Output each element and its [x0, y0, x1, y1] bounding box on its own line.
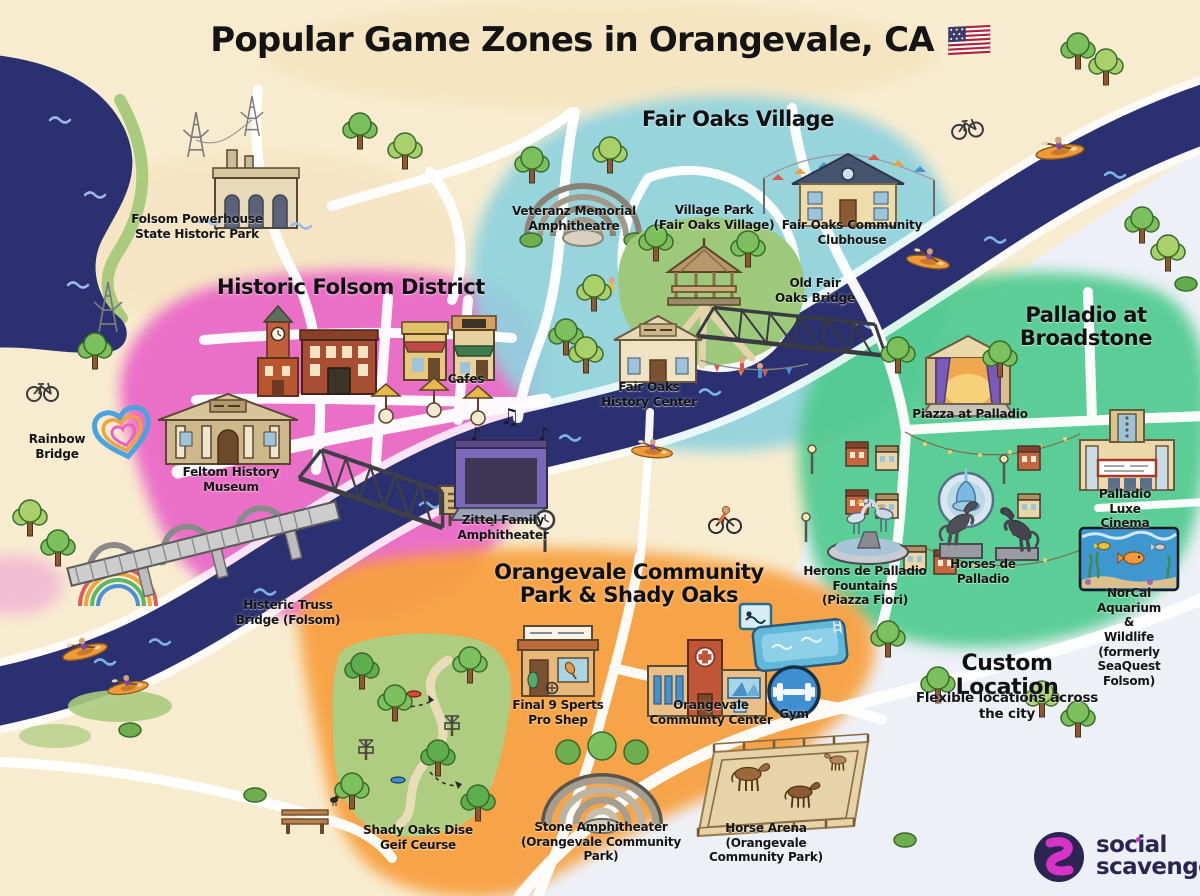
map-illustration: ♪ ♫ ♪ [0, 0, 1200, 896]
label-herons-fountains: Herons de Palladio Fountains (Piazza Fio… [803, 564, 926, 608]
zittel-stage-icon [451, 440, 551, 520]
label-stone-amphitheater: Stone Amphitheater (Orangevale Community… [521, 820, 681, 864]
label-disc-golf: Shady Oaks Dise Geif Ceurse [363, 823, 473, 852]
label-zittel-amphitheater: Zittel Family Amphitheater [458, 513, 549, 542]
aquarium-icon [1080, 528, 1178, 590]
zone-title-fair-oaks: Fair Oaks Village [642, 108, 834, 131]
label-gym: Gym [779, 707, 809, 722]
page-title: Popular Game Zones in Orangevale, CA [210, 20, 990, 60]
logo-mark-icon [1032, 830, 1086, 884]
label-old-bridge: Old Fair Oaks Bridge [775, 276, 855, 305]
zone-title-orangevale: Orangevale Community Park & Shady Oaks [494, 561, 764, 606]
illustrated-map: ♪ ♫ ♪ [0, 0, 1200, 896]
zone-title-historic-folsom: Historic Folsom District [217, 276, 485, 299]
social-scavenger-logo: social scavenger. [1032, 830, 1200, 884]
logo-word-scavenger: scavenger. [1096, 857, 1200, 879]
label-village-park: Village Park (Fair Oaks Village) [654, 203, 775, 232]
svg-text:♪: ♪ [538, 424, 550, 445]
label-rainbow-bridge: Rainbow Bridge [29, 432, 86, 461]
title-text: Popular Game Zones in Orangevale, CA [210, 20, 934, 60]
pro-shop-icon [518, 626, 598, 696]
brick-buildings-icon [300, 330, 378, 394]
label-clubhouse: Fair Oaks Community Clubhouse [782, 218, 922, 247]
label-veterans-amphitheatre: Veteranz Memorial Amphitheatre [512, 204, 636, 233]
svg-text:♫: ♫ [500, 405, 520, 430]
label-piazza: Piazza at Palladio [912, 407, 1028, 422]
svg-text:♪: ♪ [470, 424, 482, 445]
label-aquarium: NorCal Aquarium & Wildlife (formerly Sea… [1094, 586, 1165, 688]
pool-icon [752, 618, 848, 671]
label-cinema: Palladio Luxe Cinema [1088, 487, 1163, 531]
label-horses: Horses de Palladio [950, 557, 1016, 586]
label-folsom-powerhouse: Folsom Powerhouse State Historic Park [131, 212, 263, 241]
label-history-museum: Feltom History Museum [183, 465, 280, 494]
label-horse-arena: Horse Arena (Orangevale Community Park) [709, 821, 823, 865]
custom-location-subtitle: Flexible locations across the city [911, 690, 1104, 723]
us-flag-icon [948, 25, 990, 55]
label-history-center: Fair Oaks History Center [601, 380, 697, 409]
label-cafes: Cafes [448, 372, 484, 387]
label-pro-shop: Final 9 Sperts Pro Shep [512, 698, 603, 727]
label-truss-bridge: Histeric Truss Bridge (Folsom) [236, 598, 341, 627]
zone-title-palladio: Palladio at Broadstone [1020, 304, 1152, 349]
label-community-center: Orangevale Commumty Center [649, 698, 772, 727]
